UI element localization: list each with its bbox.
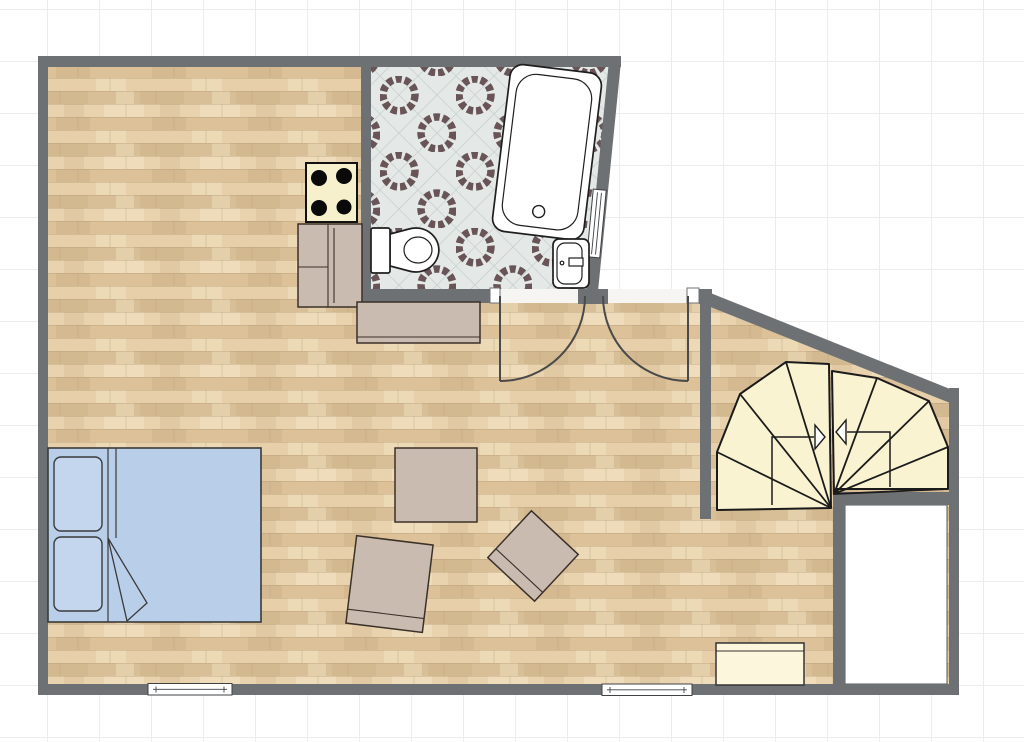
pillow[interactable] — [54, 537, 102, 611]
double-bed[interactable] — [48, 448, 261, 622]
burner-icon — [337, 200, 352, 215]
pillow[interactable] — [54, 457, 102, 531]
square-table[interactable] — [395, 448, 477, 522]
console-table[interactable] — [357, 302, 480, 343]
wall-left — [38, 56, 48, 695]
under-stair-void[interactable] — [845, 505, 947, 684]
burner-icon — [311, 170, 327, 186]
bathroom-sink[interactable] — [553, 239, 589, 288]
faucet-icon — [569, 258, 583, 266]
window-bottom-right[interactable] — [602, 684, 692, 696]
threshold-entrance-door — [608, 289, 687, 303]
burner-icon — [311, 200, 327, 216]
stool-tilted[interactable] — [346, 536, 433, 633]
bathtub[interactable] — [491, 63, 603, 241]
toilet[interactable] — [371, 228, 439, 273]
cooktop[interactable] — [306, 163, 357, 222]
storage-bench[interactable] — [716, 643, 804, 685]
wall-right — [949, 388, 959, 695]
floor-plan-canvas — [0, 0, 1024, 742]
wall-stair-separator — [700, 293, 711, 519]
burner-icon — [336, 168, 352, 184]
kitchen-counter[interactable] — [298, 224, 362, 307]
window-bottom-left[interactable] — [148, 684, 232, 696]
wall-void-left — [833, 492, 845, 692]
wall-bathroom-bottom — [361, 289, 490, 303]
threshold-bathroom-door — [500, 289, 578, 303]
jamb-bathroom-door — [490, 288, 500, 303]
